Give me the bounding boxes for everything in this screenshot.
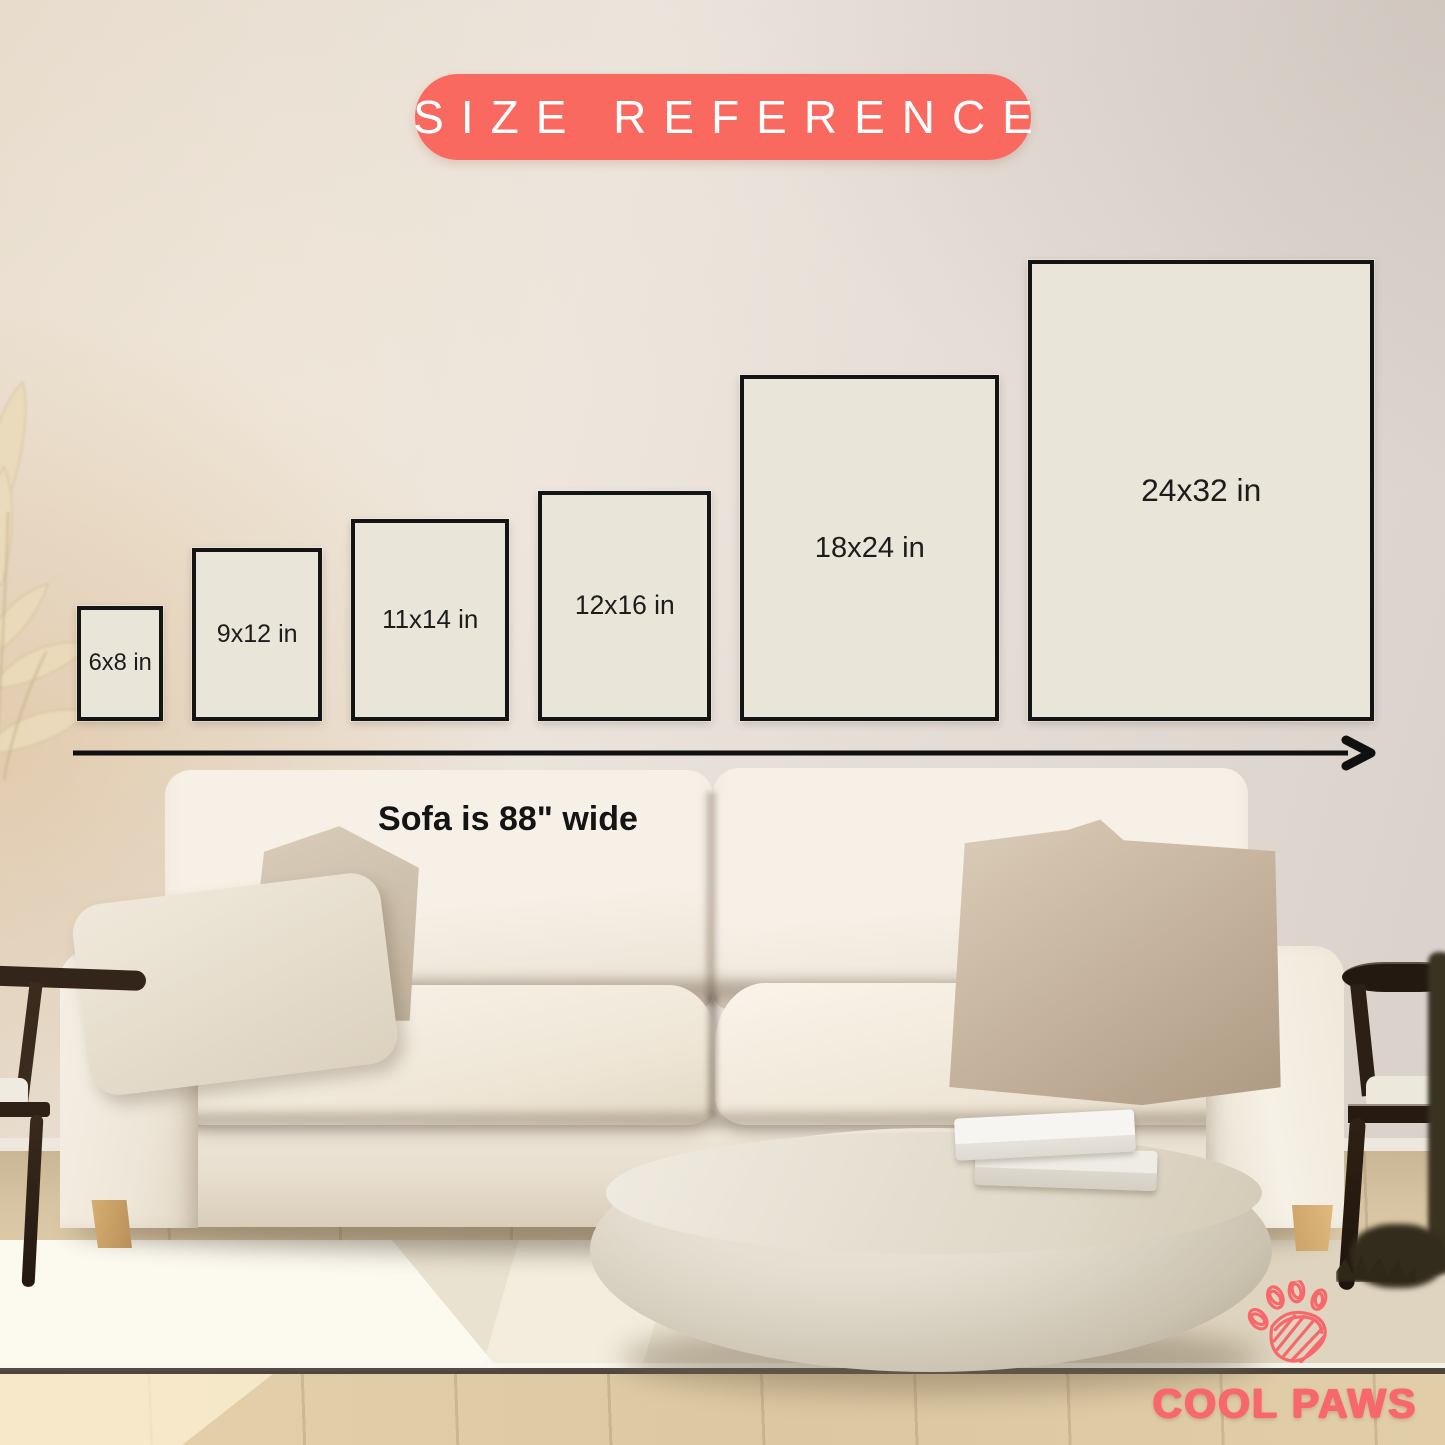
cushion-gap-shadow — [706, 792, 716, 1006]
throw-pillow-taupe-right — [935, 814, 1290, 1110]
size-reference-mockup: SIZE REFERENCE 6x8 in9x12 in11x14 in12x1… — [0, 0, 1445, 1445]
seat-gap-shadow — [708, 995, 717, 1117]
pampas-grass — [0, 352, 156, 782]
size-reference-badge: SIZE REFERENCE — [415, 74, 1031, 160]
width-arrow — [70, 735, 1385, 775]
brand-name: COOL PAWS — [1130, 1380, 1440, 1427]
paw-icon — [1239, 1276, 1342, 1370]
dried-plant-stem — [1428, 952, 1445, 1274]
left-chair-seat — [0, 1102, 50, 1117]
coffee-table-top — [606, 1132, 1262, 1254]
sofa-width-note: Sofa is 88" wide — [358, 800, 658, 839]
badge-label: SIZE REFERENCE — [396, 90, 1050, 144]
